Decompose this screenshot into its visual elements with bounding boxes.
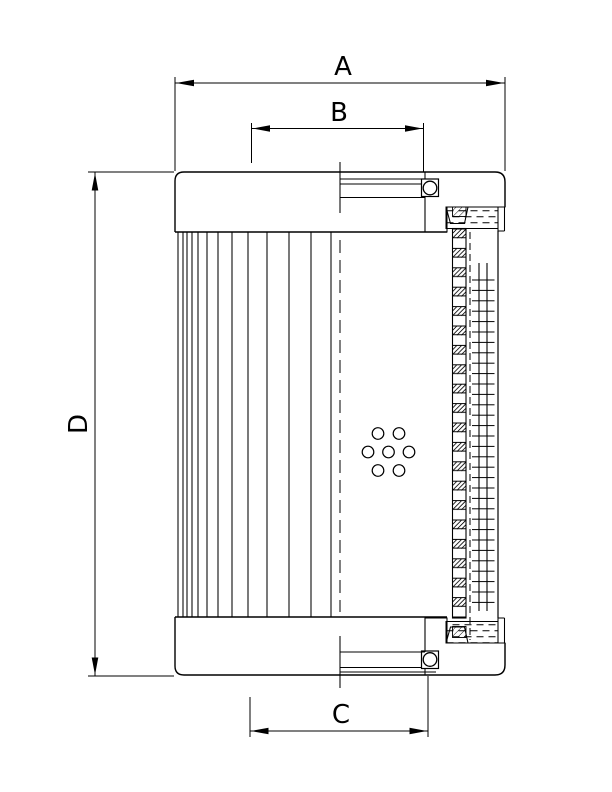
top-oring xyxy=(423,181,437,195)
drawing-background xyxy=(0,0,612,792)
mesh-rungs xyxy=(472,279,495,606)
dimension-label-b: B xyxy=(330,98,348,128)
technical-drawing: A B C D xyxy=(0,0,612,792)
support-mesh xyxy=(470,231,498,640)
bottom-media-end-section xyxy=(453,627,467,638)
bottom-oring xyxy=(423,653,437,667)
dimension-label-a: A xyxy=(334,52,352,82)
media-section-strip xyxy=(453,229,467,619)
top-media-end-section xyxy=(453,207,467,217)
dimension-label-d: D xyxy=(64,414,94,434)
dimension-label-c: C xyxy=(332,700,350,730)
